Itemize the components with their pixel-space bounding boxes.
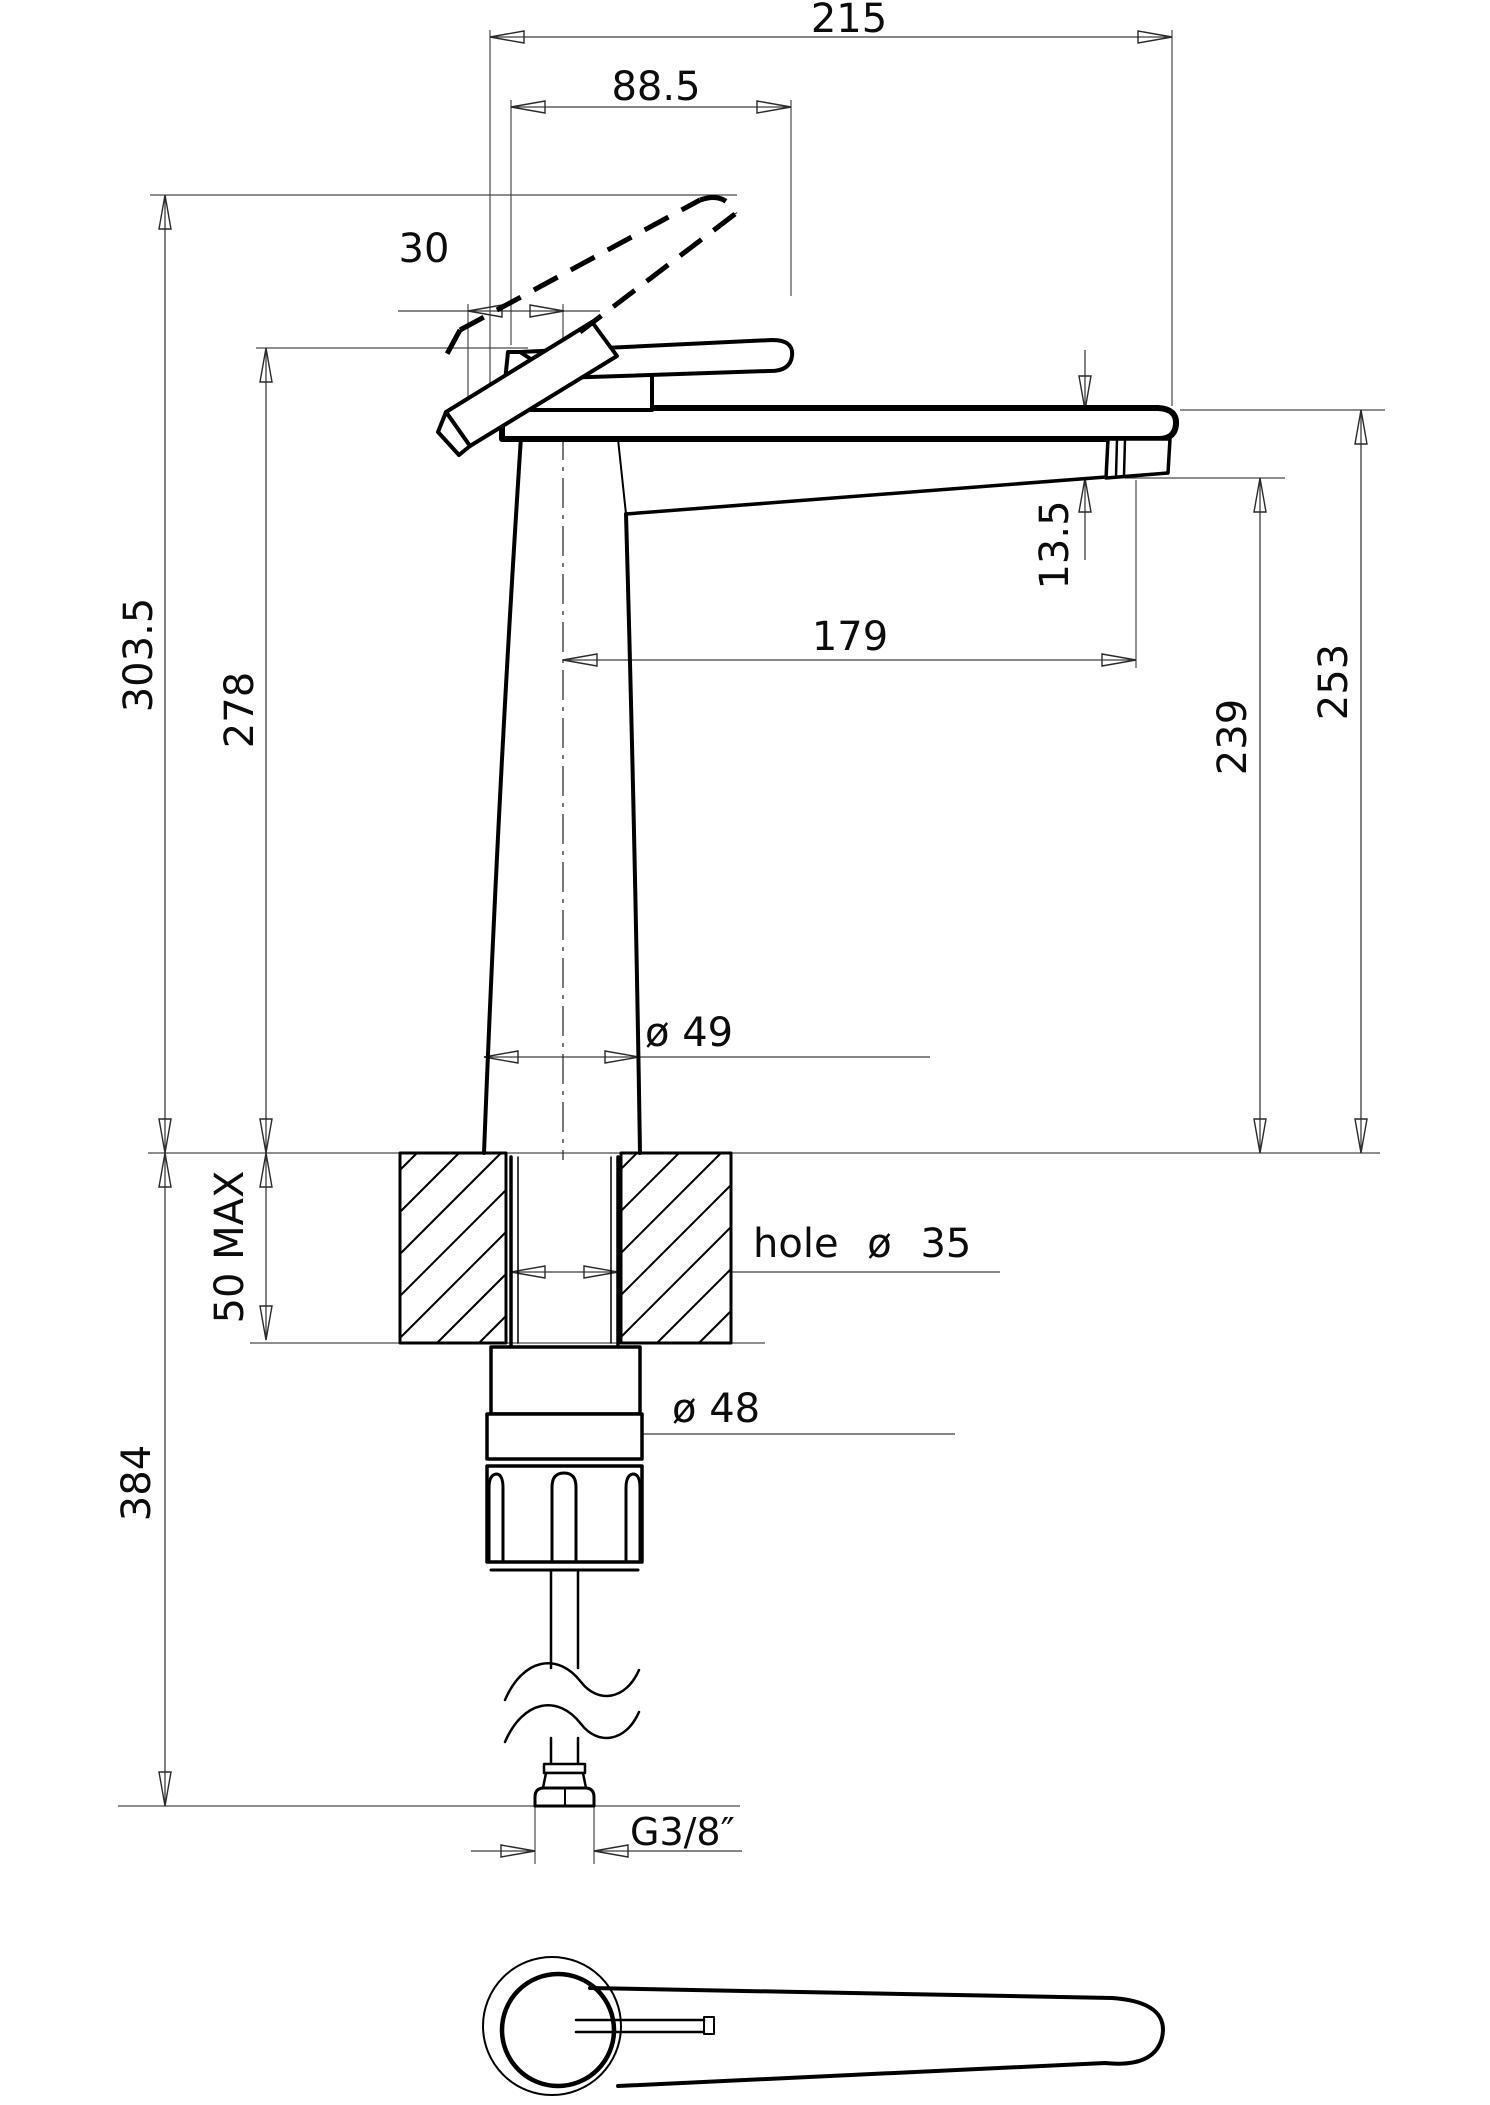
faucet-front-view [438,197,1176,1806]
hose-break-symbol [505,1663,639,1742]
dimension-arrowheads [159,31,1367,1857]
dim-spout-end-drop: 13.5 [1032,500,1078,589]
dim-under-deck-length: 384 [114,1445,160,1521]
handle-plan-view [483,1957,1163,2095]
dim-height-open: 303.5 [116,598,162,713]
dim-hole-note: hole ø 35 [753,1221,971,1267]
supply-hose [505,1570,639,1806]
dim-body-diameter: ø 49 [645,1010,733,1056]
dim-total-reach: 215 [811,0,887,42]
drawing-sheet: 215 88.5 30 179 303.5 278 13.5 239 253 ø… [0,0,1490,2105]
spout [502,408,1176,514]
body-column [484,430,640,1160]
dimension-labels: 215 88.5 30 179 303.5 278 13.5 239 253 ø… [114,0,1357,1854]
dim-spout-reach: 179 [812,614,888,660]
dim-spout-underside-height: 239 [1210,699,1256,775]
dim-thread: G3/8″ [630,1810,735,1854]
handle-lever-plan [590,1988,1163,2086]
dim-height-closed: 278 [217,672,263,748]
spout-blade [502,408,1176,439]
dim-spout-top-height: 253 [1311,644,1357,720]
mounting-shank [511,1157,618,1347]
dim-nut-diameter: ø 48 [672,1386,760,1432]
dim-deck-thickness: 50 MAX [207,1171,253,1324]
dim-handle-offset: 30 [399,226,450,272]
mounting-nut-stack [487,1347,642,1570]
dimension-lines [165,37,1361,1851]
extension-lines [118,30,1385,1864]
outlet-fitting [535,1764,594,1806]
dim-handle-projection: 88.5 [611,64,700,110]
technical-drawing: 215 88.5 30 179 303.5 278 13.5 239 253 ø… [0,0,1490,2105]
countertop-section [400,1153,731,1343]
handle-boss-circle [502,1974,614,2086]
countertop-right-block [621,1153,731,1343]
